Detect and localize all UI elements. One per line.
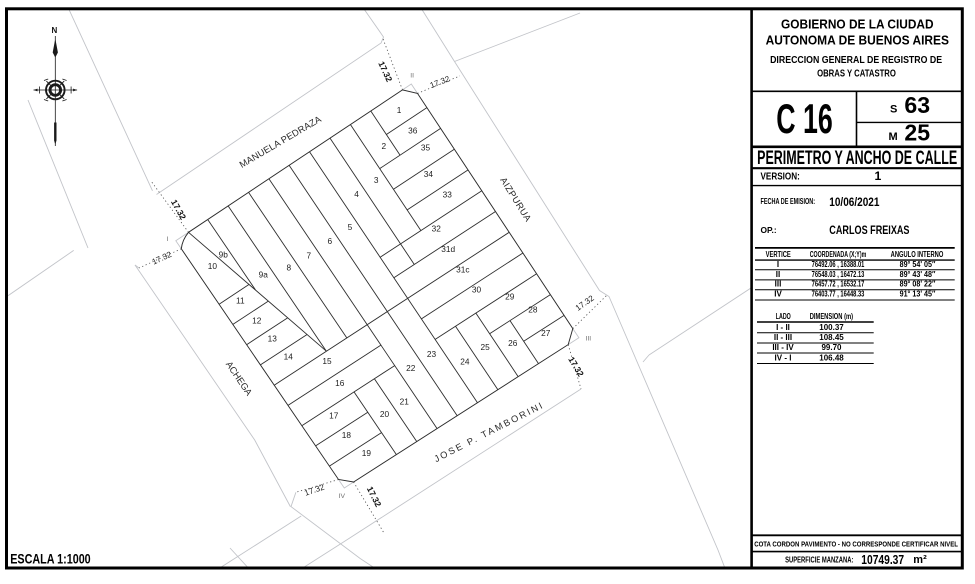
svg-text:26: 26 bbox=[508, 338, 518, 348]
svg-text:76548.03 , 16472.13: 76548.03 , 16472.13 bbox=[812, 270, 865, 279]
svg-text:OBRAS Y CATASTRO: OBRAS Y CATASTRO bbox=[817, 68, 896, 79]
svg-text:GOBIERNO DE LA CIUDAD: GOBIERNO DE LA CIUDAD bbox=[781, 17, 934, 32]
svg-text:76403.77 , 16448.33: 76403.77 , 16448.33 bbox=[812, 290, 865, 299]
svg-text:16: 16 bbox=[335, 378, 345, 388]
svg-text:DIMENSION (m): DIMENSION (m) bbox=[810, 312, 854, 321]
svg-text:99.70: 99.70 bbox=[821, 343, 842, 352]
svg-text:3: 3 bbox=[374, 175, 379, 185]
svg-text:2: 2 bbox=[381, 141, 386, 151]
svg-text:27: 27 bbox=[541, 328, 551, 338]
svg-text:1: 1 bbox=[397, 105, 402, 115]
svg-text:14: 14 bbox=[284, 352, 294, 362]
svg-text:III: III bbox=[585, 336, 591, 343]
svg-text:FECHA DE EMISION:: FECHA DE EMISION: bbox=[761, 196, 816, 206]
svg-text:C 16: C 16 bbox=[776, 95, 833, 142]
svg-text:CARLOS FREIXAS: CARLOS FREIXAS bbox=[829, 223, 909, 237]
svg-text:89° 08' 22″: 89° 08' 22″ bbox=[900, 280, 936, 289]
svg-text:AUTONOMA DE BUENOS AIRES: AUTONOMA DE BUENOS AIRES bbox=[766, 33, 949, 48]
svg-text:19: 19 bbox=[362, 448, 372, 458]
svg-text:89° 54' 05″: 89° 54' 05″ bbox=[900, 260, 936, 269]
svg-text:100.37: 100.37 bbox=[819, 323, 844, 332]
svg-text:10: 10 bbox=[208, 261, 218, 271]
svg-text:89° 43' 48″: 89° 43' 48″ bbox=[900, 270, 936, 279]
svg-text:IV - I: IV - I bbox=[775, 353, 792, 362]
svg-text:4: 4 bbox=[354, 189, 359, 199]
svg-text:31c: 31c bbox=[456, 265, 469, 275]
svg-text:91° 13' 45″: 91° 13' 45″ bbox=[900, 290, 936, 299]
svg-text:63: 63 bbox=[904, 92, 930, 118]
svg-text:33: 33 bbox=[443, 189, 453, 199]
svg-text:m²: m² bbox=[913, 554, 927, 566]
svg-text:COTA CORDON PAVIMENTO - NO COR: COTA CORDON PAVIMENTO - NO CORRESPONDE C… bbox=[754, 539, 958, 548]
svg-text:15: 15 bbox=[322, 356, 332, 366]
svg-text:22: 22 bbox=[406, 363, 416, 373]
svg-text:108.45: 108.45 bbox=[819, 333, 844, 342]
svg-text:I - II: I - II bbox=[776, 323, 790, 332]
svg-text:III - IV: III - IV bbox=[772, 343, 794, 352]
svg-text:LADO: LADO bbox=[776, 312, 791, 321]
svg-text:11: 11 bbox=[236, 296, 245, 306]
svg-text:12: 12 bbox=[252, 316, 262, 326]
svg-text:1: 1 bbox=[875, 169, 882, 183]
svg-text:II - III: II - III bbox=[774, 333, 792, 342]
svg-text:IV: IV bbox=[339, 493, 346, 500]
svg-text:36: 36 bbox=[408, 125, 418, 135]
svg-text:10749.37: 10749.37 bbox=[861, 552, 904, 567]
svg-text:76492.06 , 16388.01: 76492.06 , 16388.01 bbox=[812, 260, 865, 269]
svg-text:III: III bbox=[775, 280, 782, 289]
svg-text:I: I bbox=[777, 260, 779, 269]
svg-text:II: II bbox=[410, 73, 414, 80]
svg-text:17: 17 bbox=[329, 410, 339, 420]
svg-text:34: 34 bbox=[424, 169, 434, 179]
svg-text:ESCALA 1:1000: ESCALA 1:1000 bbox=[10, 552, 91, 567]
svg-text:28: 28 bbox=[528, 304, 538, 314]
svg-text:31d: 31d bbox=[441, 244, 455, 254]
svg-text:30: 30 bbox=[472, 284, 482, 294]
svg-text:13: 13 bbox=[268, 333, 278, 343]
svg-text:IV: IV bbox=[774, 290, 782, 299]
svg-text:N: N bbox=[52, 26, 58, 35]
svg-text:20: 20 bbox=[380, 409, 390, 419]
svg-text:23: 23 bbox=[427, 349, 437, 359]
svg-text:25: 25 bbox=[480, 342, 490, 352]
svg-text:21: 21 bbox=[400, 397, 410, 407]
svg-text:9b: 9b bbox=[219, 250, 229, 260]
svg-text:10/06/2021: 10/06/2021 bbox=[829, 195, 879, 209]
svg-text:OP.:: OP.: bbox=[761, 225, 777, 235]
svg-text:II: II bbox=[776, 270, 780, 279]
svg-text:7: 7 bbox=[306, 251, 311, 261]
svg-text:6: 6 bbox=[327, 236, 332, 246]
svg-text:29: 29 bbox=[505, 292, 515, 302]
svg-text:9a: 9a bbox=[259, 269, 269, 279]
svg-text:VERSION:: VERSION: bbox=[761, 172, 800, 183]
svg-text:DIRECCION GENERAL DE REGISTRO: DIRECCION GENERAL DE REGISTRO DE bbox=[770, 55, 942, 66]
svg-text:8: 8 bbox=[286, 263, 291, 273]
svg-text:ANGULO INTERNO: ANGULO INTERNO bbox=[891, 250, 944, 259]
svg-text:32: 32 bbox=[432, 224, 442, 234]
svg-text:M: M bbox=[889, 131, 898, 143]
svg-text:18: 18 bbox=[342, 430, 352, 440]
svg-text:I: I bbox=[167, 236, 169, 243]
svg-text:76457.72 , 16532.17: 76457.72 , 16532.17 bbox=[812, 280, 865, 289]
svg-text:5: 5 bbox=[348, 222, 353, 232]
svg-text:SUPERFICIE MANZANA:: SUPERFICIE MANZANA: bbox=[785, 555, 853, 565]
svg-text:S: S bbox=[890, 104, 897, 116]
svg-text:106.48: 106.48 bbox=[819, 353, 844, 362]
svg-text:PERIMETRO Y ANCHO DE CALLE: PERIMETRO Y ANCHO DE CALLE bbox=[757, 148, 957, 169]
svg-text:VERTICE: VERTICE bbox=[766, 250, 792, 259]
svg-text:COORDENADA (X;Y)m: COORDENADA (X;Y)m bbox=[810, 250, 867, 259]
svg-text:25: 25 bbox=[904, 120, 930, 146]
svg-text:24: 24 bbox=[460, 356, 470, 366]
svg-text:35: 35 bbox=[421, 143, 431, 153]
